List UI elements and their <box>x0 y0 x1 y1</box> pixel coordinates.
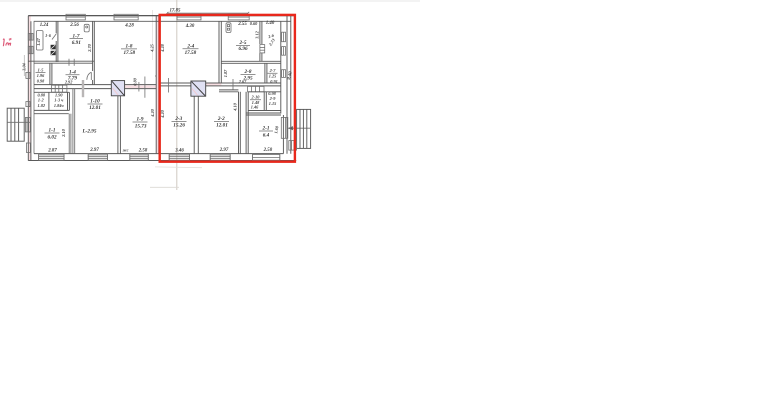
svg-text:2.92: 2.92 <box>64 79 73 84</box>
svg-text:1.84ч: 1.84ч <box>54 103 65 108</box>
svg-text:2.97: 2.97 <box>89 148 99 153</box>
svg-text:1-6: 1-6 <box>45 33 52 38</box>
svg-text:0.80: 0.80 <box>133 77 138 85</box>
svg-text:1.15: 1.15 <box>269 101 277 106</box>
svg-text:2.70: 2.70 <box>87 43 92 52</box>
svg-text:2.50: 2.50 <box>263 148 273 153</box>
svg-text:4.25: 4.25 <box>150 43 155 52</box>
svg-text:1.24: 1.24 <box>40 23 49 28</box>
svg-text:6.02: 6.02 <box>47 134 56 140</box>
svg-text:1.96: 1.96 <box>37 73 45 78</box>
svg-text:4.10: 4.10 <box>233 102 238 111</box>
svg-text:4.20: 4.20 <box>150 108 155 117</box>
svg-text:2.58: 2.58 <box>138 149 148 154</box>
svg-text:1.40: 1.40 <box>266 21 275 26</box>
svg-text:2-7: 2-7 <box>269 68 277 73</box>
svg-text:L-2.95: L-2.95 <box>82 128 97 134</box>
svg-text:1.87: 1.87 <box>223 69 228 77</box>
svg-text:2.67: 2.67 <box>238 79 247 84</box>
svg-text:1.25: 1.25 <box>269 74 277 79</box>
svg-text:2.97: 2.97 <box>219 148 229 153</box>
svg-text:1.46: 1.46 <box>251 105 259 110</box>
svg-text:17.58: 17.58 <box>123 50 135 56</box>
svg-text:0.91: 0.91 <box>270 79 278 84</box>
svg-text:6.96: 6.96 <box>238 46 247 52</box>
svg-text:жс: жс <box>123 148 129 153</box>
svg-text:15.73: 15.73 <box>135 123 147 129</box>
svg-text:6.91: 6.91 <box>72 40 81 46</box>
svg-text:0.88: 0.88 <box>38 92 46 97</box>
svg-text:1-5: 1-5 <box>38 68 45 73</box>
svg-text:17.58: 17.58 <box>185 50 197 56</box>
svg-text:2.10: 2.10 <box>61 128 66 137</box>
svg-text:4.28: 4.28 <box>124 24 134 29</box>
svg-text:1-3 ч: 1-3 ч <box>54 98 64 103</box>
svg-text:9.40: 9.40 <box>287 71 294 81</box>
svg-text:2-10: 2-10 <box>251 95 261 100</box>
svg-text:0.98: 0.98 <box>37 79 45 84</box>
svg-text:2.56: 2.56 <box>69 23 79 28</box>
svg-text:12.01: 12.01 <box>89 105 101 111</box>
svg-text:1.60: 1.60 <box>273 125 279 134</box>
svg-text:3.46: 3.46 <box>174 148 184 153</box>
svg-text:1.47: 1.47 <box>36 37 41 45</box>
svg-text:2.55: 2.55 <box>237 22 247 27</box>
svg-text:1-7: 1-7 <box>73 33 80 39</box>
svg-text:1.82: 1.82 <box>38 103 46 108</box>
svg-text:2.87: 2.87 <box>47 149 57 154</box>
svg-text:1.90: 1.90 <box>55 92 63 97</box>
svg-text:1-2: 1-2 <box>38 98 45 103</box>
svg-text:15.26: 15.26 <box>173 123 185 129</box>
svg-text:4.30: 4.30 <box>185 24 195 29</box>
svg-text:6.4: 6.4 <box>263 132 270 138</box>
svg-text:12.01: 12.01 <box>216 123 228 129</box>
svg-text:3.12: 3.12 <box>254 30 259 39</box>
svg-text:0.60: 0.60 <box>250 21 258 26</box>
